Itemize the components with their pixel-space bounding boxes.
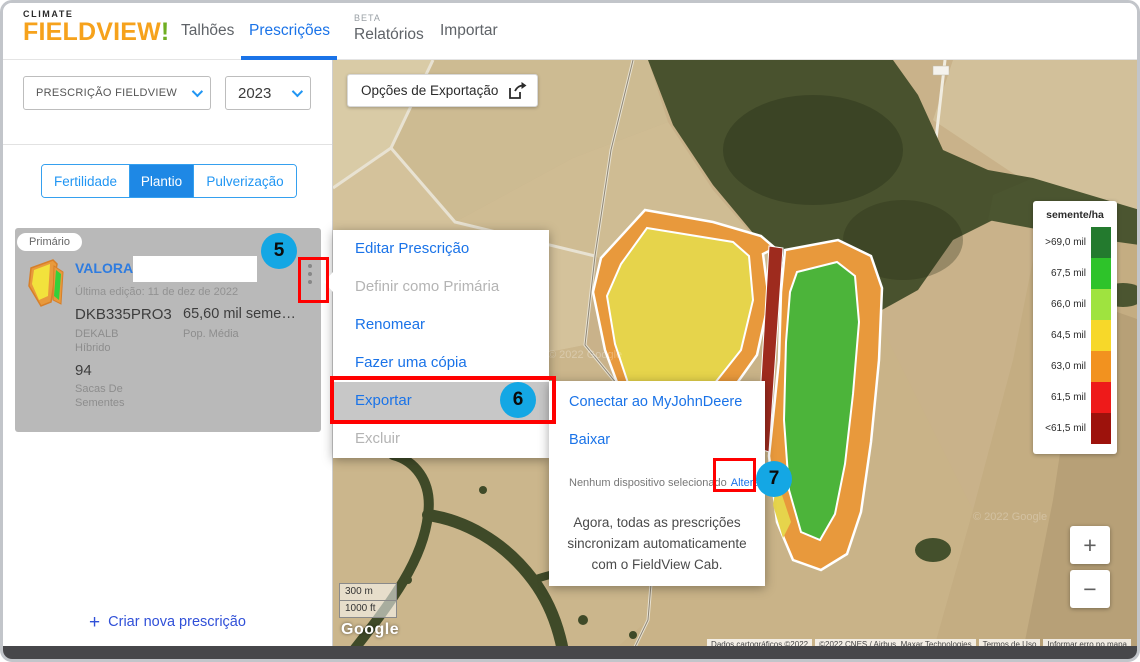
legend-swatch xyxy=(1091,227,1111,258)
menu-item-definir-como-primaria: Definir como Primária xyxy=(333,268,549,306)
submenu-item-myjohndeere[interactable]: Conectar ao MyJohnDeere xyxy=(569,394,742,410)
prescription-type-value: PRESCRIÇÃO FIELDVIEW xyxy=(36,87,177,99)
menu-item-fazer-uma-copia[interactable]: Fazer uma cópia xyxy=(333,344,549,382)
fieldview-logo[interactable]: CLIMATE FIELDVIEW! xyxy=(23,10,169,45)
scale-bar-metric: 300 m xyxy=(339,583,397,601)
legend-row: 67,5 mil xyxy=(1039,258,1111,289)
app-window: © 2022 Google © 2022 Google CLIMATE FIEL… xyxy=(0,0,1140,662)
export-submenu: Conectar ao MyJohnDeere Baixar Nenhum di… xyxy=(549,381,765,586)
menu-item-renomear[interactable]: Renomear xyxy=(333,306,549,344)
legend-row: >69,0 mil xyxy=(1039,227,1111,258)
menu-pointer-arrow xyxy=(324,272,333,292)
tab-pulverizacao[interactable]: Pulverização xyxy=(194,165,296,197)
legend-row: 61,5 mil xyxy=(1039,382,1111,413)
legend-swatch xyxy=(1091,382,1111,413)
sync-note-text: Agora, todas as prescrições sincronizam … xyxy=(561,513,753,576)
nav-tab-importar[interactable]: Importar xyxy=(440,22,498,40)
legend-row: <61,5 mil xyxy=(1039,413,1111,444)
bags-label-line1: Sacas De xyxy=(75,383,123,395)
legend-title: semente/ha xyxy=(1039,209,1111,221)
legend-row: 63,0 mil xyxy=(1039,351,1111,382)
hybrid-code: DKB335PRO3 xyxy=(75,306,172,323)
chevron-down-icon xyxy=(292,86,303,97)
bags-label-line2: Sementes xyxy=(75,397,125,409)
bags-count: 94 xyxy=(75,362,92,379)
prescription-context-menu: Editar Prescrição Definir como Primária … xyxy=(333,230,549,458)
year-dropdown[interactable]: 2023 xyxy=(225,76,311,110)
nav-tab-relatorios[interactable]: Relatórios xyxy=(354,26,424,44)
year-value: 2023 xyxy=(238,85,271,102)
seed-rate-label: Pop. Média xyxy=(183,328,239,340)
alterar-link[interactable]: Alterar xyxy=(731,477,763,489)
primary-badge: Primário xyxy=(17,233,82,251)
share-export-icon xyxy=(507,81,527,101)
google-watermark: Google xyxy=(341,621,399,639)
legend-swatch xyxy=(1091,320,1111,351)
redaction-box xyxy=(133,256,257,282)
prescription-category-tabs: Fertilidade Plantio Pulverização xyxy=(41,164,297,198)
top-nav-bar: CLIMATE FIELDVIEW! Talhões Prescrições B… xyxy=(3,3,1137,60)
prescription-card[interactable]: Primário VALORA_ Última edição: 11 de de… xyxy=(15,228,321,432)
legend-row: 66,0 mil xyxy=(1039,289,1111,320)
last-edited-text: Última edição: 11 de dez de 2022 xyxy=(75,286,238,298)
menu-item-exportar[interactable]: Exportar xyxy=(333,382,549,420)
export-options-label: Opções de Exportação xyxy=(361,83,498,98)
legend-swatch xyxy=(1091,289,1111,320)
window-bottom-frame xyxy=(3,646,1137,659)
legend-swatch xyxy=(1091,258,1111,289)
logo-leaf-icon: ! xyxy=(161,18,170,46)
plus-icon: + xyxy=(89,612,100,633)
active-tab-underline xyxy=(241,56,337,60)
prescription-name: VALORA_ xyxy=(75,260,141,276)
create-prescription-label: Criar nova prescrição xyxy=(108,614,246,630)
submenu-item-baixar[interactable]: Baixar xyxy=(569,432,610,448)
create-prescription-button[interactable]: +Criar nova prescrição xyxy=(3,612,332,634)
nav-tab-prescricoes[interactable]: Prescrições xyxy=(249,22,330,40)
legend-swatch xyxy=(1091,351,1111,382)
zoom-out-button[interactable]: − xyxy=(1070,570,1110,608)
nav-tab-talhoes[interactable]: Talhões xyxy=(181,22,234,40)
device-status-text: Nenhum dispositivo selecionado xyxy=(569,477,727,489)
tab-fertilidade[interactable]: Fertilidade xyxy=(42,165,130,197)
chevron-down-icon xyxy=(192,86,203,97)
zoom-in-button[interactable]: + xyxy=(1070,526,1110,564)
beta-badge: BETA xyxy=(354,13,381,23)
prescription-type-dropdown[interactable]: PRESCRIÇÃO FIELDVIEW xyxy=(23,76,211,110)
legend-swatch xyxy=(1091,413,1111,444)
prescriptions-sidebar: PRESCRIÇÃO FIELDVIEW 2023 Fertilidade Pl… xyxy=(3,60,333,651)
device-status-row: Nenhum dispositivo selecionadoAlterar xyxy=(569,477,763,489)
svg-text:© 2022 Google: © 2022 Google xyxy=(973,511,1047,523)
hybrid-brand: DEKALB xyxy=(75,328,118,340)
hybrid-type-label: Híbrido xyxy=(75,342,110,354)
tab-plantio[interactable]: Plantio xyxy=(130,165,194,197)
export-options-button[interactable]: Opções de Exportação xyxy=(347,74,538,107)
menu-item-excluir: Excluir xyxy=(333,420,549,458)
legend-row: 64,5 mil xyxy=(1039,320,1111,351)
seed-rate: 65,60 mil seme… xyxy=(183,306,296,322)
field-thumbnail xyxy=(27,258,69,312)
card-options-kebab-icon[interactable] xyxy=(301,258,319,302)
scale-bar-imperial: 1000 ft xyxy=(339,600,397,618)
divider xyxy=(3,144,332,145)
seed-rate-legend: semente/ha >69,0 mil 67,5 mil 66,0 mil 6… xyxy=(1033,201,1117,454)
svg-text:© 2022 Google: © 2022 Google xyxy=(548,349,622,361)
menu-item-editar-prescricao[interactable]: Editar Prescrição xyxy=(333,230,549,268)
logo-fieldview-text: FIELDVIEW! xyxy=(23,20,169,45)
